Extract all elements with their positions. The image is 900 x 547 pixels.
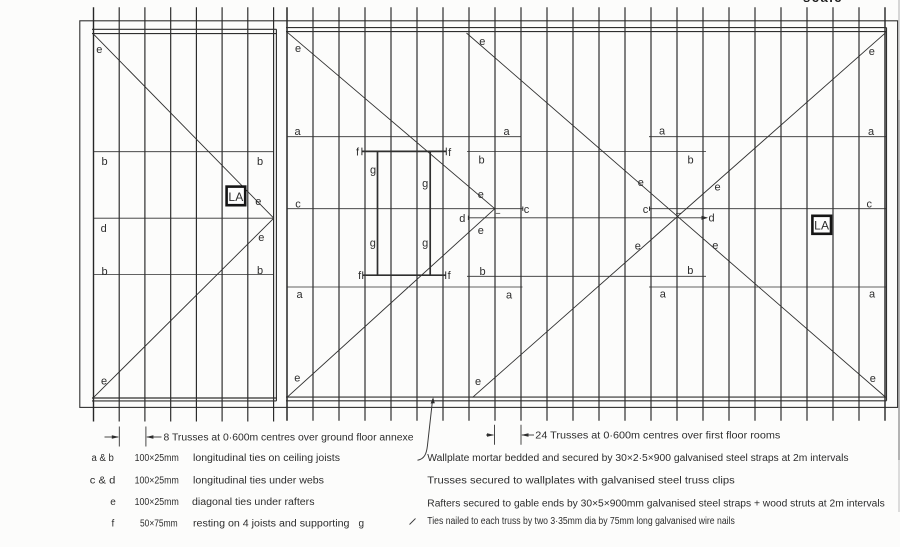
svg-text:a: a bbox=[294, 126, 301, 138]
svg-text:e: e bbox=[478, 189, 484, 201]
svg-text:100×25mm: 100×25mm bbox=[135, 453, 179, 464]
svg-text:diagonal ties under rafters: diagonal ties under rafters bbox=[192, 497, 315, 508]
svg-text:e: e bbox=[635, 241, 641, 253]
svg-text:b: b bbox=[479, 266, 485, 278]
svg-text:e: e bbox=[475, 376, 481, 388]
svg-text:Trusses secured to wallplates: Trusses secured to wallplates with galva… bbox=[427, 476, 735, 487]
svg-text:e: e bbox=[101, 376, 107, 388]
svg-text:LA: LA bbox=[814, 219, 829, 233]
svg-text:d: d bbox=[101, 223, 107, 235]
svg-text:d: d bbox=[708, 213, 714, 225]
svg-text:100×25mm: 100×25mm bbox=[135, 475, 179, 486]
svg-text:g: g bbox=[370, 238, 376, 250]
svg-text:a: a bbox=[503, 126, 510, 138]
svg-text:c: c bbox=[295, 198, 301, 210]
svg-text:a: a bbox=[660, 289, 667, 301]
svg-text:a & b: a & b bbox=[92, 453, 115, 464]
svg-text:a: a bbox=[659, 126, 666, 138]
svg-text:Rafters secured to gable ends: Rafters secured to gable ends by 30×5×90… bbox=[427, 498, 885, 509]
svg-text:e: e bbox=[294, 373, 300, 385]
svg-text:e: e bbox=[869, 46, 875, 58]
svg-text:c: c bbox=[867, 199, 873, 211]
svg-text:24 Trusses at 0·600m centres o: 24 Trusses at 0·600m centres over first … bbox=[535, 431, 780, 442]
svg-text:b: b bbox=[102, 156, 108, 168]
svg-text:e: e bbox=[478, 225, 484, 237]
svg-text:g: g bbox=[370, 165, 376, 177]
svg-text:d: d bbox=[459, 213, 465, 225]
svg-text:Wallplate mortar bedded and se: Wallplate mortar bedded and secured by 3… bbox=[427, 453, 848, 464]
svg-text:g: g bbox=[359, 519, 365, 530]
svg-text:b: b bbox=[687, 265, 693, 277]
svg-text:50×75mm: 50×75mm bbox=[140, 519, 178, 530]
svg-text:longitudinal ties on ceiling j: longitudinal ties on ceiling joists bbox=[193, 453, 340, 464]
svg-text:e: e bbox=[295, 43, 301, 55]
svg-text:100×25mm: 100×25mm bbox=[135, 497, 179, 508]
svg-text:f: f bbox=[112, 519, 115, 530]
svg-text:LA: LA bbox=[228, 190, 243, 204]
svg-text:e: e bbox=[255, 196, 261, 208]
svg-text:b: b bbox=[687, 155, 693, 167]
svg-text:e: e bbox=[258, 232, 264, 244]
svg-text:a: a bbox=[868, 126, 875, 138]
svg-text:e: e bbox=[638, 177, 644, 189]
svg-text:a: a bbox=[869, 289, 876, 301]
svg-text:b: b bbox=[102, 266, 108, 278]
svg-text:c: c bbox=[524, 204, 530, 216]
svg-text:Ties nailed to each truss by t: Ties nailed to each truss by two 3·35mm … bbox=[427, 516, 735, 527]
svg-text:c: c bbox=[643, 204, 649, 216]
svg-text:e: e bbox=[479, 36, 485, 48]
svg-text:b: b bbox=[478, 155, 484, 167]
svg-text:e: e bbox=[870, 373, 876, 385]
svg-text:c & d: c & d bbox=[90, 475, 116, 486]
svg-text:g: g bbox=[422, 238, 428, 250]
svg-text:8 Trusses at 0·600m centres ov: 8 Trusses at 0·600m centres over ground … bbox=[164, 432, 414, 443]
svg-text:longitudinal ties under webs: longitudinal ties under webs bbox=[193, 475, 324, 486]
svg-text:e: e bbox=[712, 240, 718, 252]
svg-text:a: a bbox=[506, 289, 513, 301]
svg-text:e: e bbox=[96, 44, 102, 56]
svg-text:e: e bbox=[714, 181, 720, 193]
svg-text:a: a bbox=[296, 289, 303, 301]
svg-text:e: e bbox=[110, 497, 116, 508]
svg-text:scale: scale bbox=[803, 0, 843, 5]
svg-text:b: b bbox=[257, 156, 263, 168]
svg-text:resting on 4 joists and suppor: resting on 4 joists and supporting bbox=[193, 519, 350, 530]
svg-text:b: b bbox=[257, 265, 263, 277]
svg-text:g: g bbox=[422, 178, 428, 190]
